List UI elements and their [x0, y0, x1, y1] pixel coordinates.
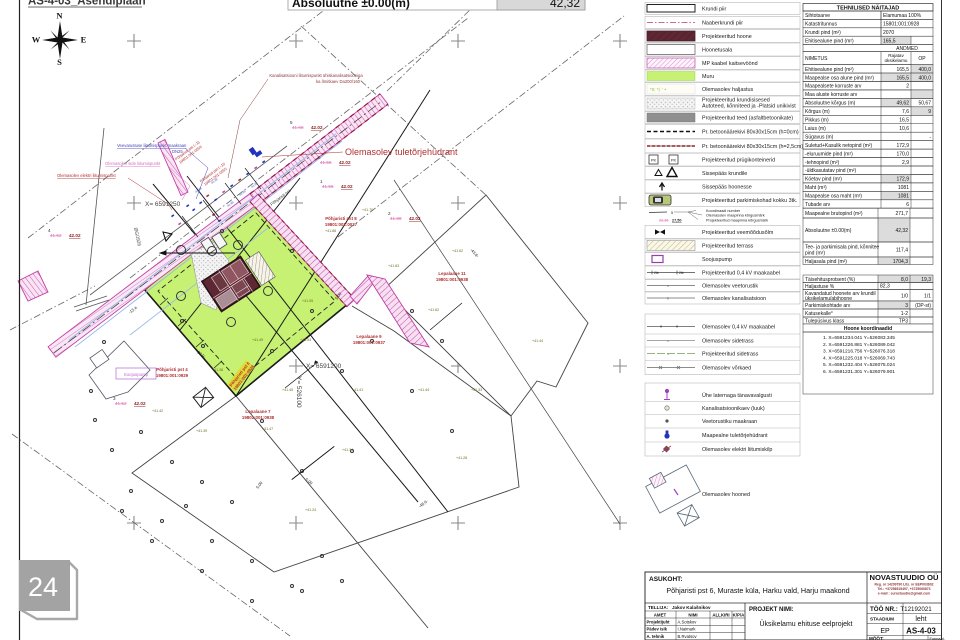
- svg-text:+41.63: +41.63: [388, 264, 399, 268]
- svg-text:AS-4-03: AS-4-03: [906, 627, 936, 636]
- svg-text:Katastritunnus: Katastritunnus: [805, 22, 837, 28]
- svg-text:W: W: [32, 35, 41, 45]
- svg-text:3. X=6591216.756 Y=526076.31: 3. X=6591216.756 Y=526076.318: [823, 349, 895, 355]
- svg-text:15801:001:0928: 15801:001:0928: [883, 22, 919, 28]
- svg-text:2tk: 2tk: [654, 271, 659, 275]
- svg-text:400,0: 400,0: [918, 67, 931, 73]
- svg-text:1/0: 1/0: [901, 293, 908, 299]
- svg-text:Maapealsete korruste arv: Maapealsete korruste arv: [805, 84, 862, 90]
- svg-text:MP kaabel kaitsevöönd: MP kaabel kaitsevöönd: [702, 61, 758, 67]
- svg-text:Projekteeritud parkimiskohad k: Projekteeritud parkimiskohad kokku 3tk.: [702, 198, 797, 204]
- svg-text:ka õmitkaev Da200/160: ka õmitkaev Da200/160: [316, 79, 361, 84]
- svg-text:Lepalaane 11: Lepalaane 11: [438, 271, 466, 276]
- svg-text:EP: EP: [880, 628, 890, 635]
- svg-text:2070: 2070: [883, 30, 894, 36]
- svg-text:Veevarustuse liitumispunkt maa: Veevarustuse liitumispunkt maakraan: [117, 143, 187, 148]
- svg-text:41.55: 41.55: [320, 160, 332, 165]
- svg-text:+41.44: +41.44: [532, 339, 543, 343]
- svg-text:+41.33: +41.33: [471, 388, 482, 392]
- svg-text:PK: PK: [671, 158, 677, 163]
- svg-text:Sihtotsarve: Sihtotsarve: [805, 13, 830, 19]
- svg-text:e-mail : eurostuudio@gmail.com: e-mail : eurostuudio@gmail.com: [878, 592, 930, 596]
- svg-text:Hoone koordinaadid: Hoone koordinaadid: [844, 326, 892, 332]
- svg-text:Projekteeritud 0,4 kV maakaabe: Projekteeritud 0,4 kV maakaabel: [702, 271, 780, 277]
- svg-text:165,5: 165,5: [896, 75, 909, 81]
- svg-text:AMET: AMET: [654, 613, 667, 618]
- svg-text:pind (m²): pind (m²): [805, 251, 825, 257]
- svg-text:*0; *|· ' •: *0; *|· ' •: [650, 87, 667, 92]
- svg-text:Kanalisatsioonikaev (luuk): Kanalisatsioonikaev (luuk): [702, 406, 765, 412]
- svg-text:41.68: 41.68: [292, 125, 304, 130]
- svg-text:Olemasolev 0,4 kV maakaabel: Olemasolev 0,4 kV maakaabel: [702, 325, 775, 331]
- svg-text:172,9: 172,9: [896, 177, 909, 183]
- svg-text:Olemasolev elektri liitumiskil: Olemasolev elektri liitumiskilp: [702, 447, 772, 453]
- svg-text:Maa aluste korruste arv: Maa aluste korruste arv: [805, 92, 858, 98]
- svg-text:ASUKOHT:: ASUKOHT:: [649, 576, 683, 583]
- svg-text:2tk: 2tk: [679, 271, 684, 275]
- svg-text:Tel.: +37256915497, +372506087: Tel.: +37256915497, +3725060873: [877, 587, 930, 591]
- svg-text:5: 5: [671, 211, 673, 215]
- svg-text:x: x: [667, 283, 669, 288]
- svg-text:165,5: 165,5: [883, 38, 896, 44]
- svg-text:s: s: [667, 338, 669, 343]
- svg-text:-eluruumide pind (m²): -eluruumide pind (m²): [805, 151, 853, 157]
- svg-text:Lepalaane 9: Lepalaane 9: [356, 334, 382, 339]
- svg-text:42,32: 42,32: [895, 228, 908, 234]
- svg-text:Olemasolev elektri liitumispun: Olemasolev elektri liitumispunkt: [57, 173, 116, 178]
- svg-text:Krundi piir: Krundi piir: [702, 7, 726, 13]
- svg-text:+41.70: +41.70: [362, 208, 373, 212]
- svg-text:Krundi pind (m²): Krundi pind (m²): [805, 30, 841, 36]
- svg-text:7,6: 7,6: [902, 109, 909, 115]
- svg-text:Projekteeritud maapinna kõrgus: Projekteeritud maapinna kõrgusmärk: [706, 218, 768, 222]
- svg-text:+41.38: +41.38: [212, 368, 223, 372]
- svg-text:16,5: 16,5: [899, 118, 909, 124]
- svg-text:Maapealse osa alune pind (m²): Maapealse osa alune pind (m²): [805, 75, 874, 81]
- svg-text:PK: PK: [651, 158, 657, 163]
- svg-text:+41.47: +41.47: [262, 427, 273, 431]
- svg-text:+41.41: +41.41: [352, 388, 363, 392]
- svg-text:+41.44: +41.44: [418, 388, 429, 392]
- svg-text:42.02: 42.02: [311, 125, 323, 130]
- svg-text:Põhjaristi pst 6, Muraste küla: Põhjaristi pst 6, Muraste küla, Harku va…: [666, 586, 849, 595]
- svg-text:AS-4-03_Asendiplaan: AS-4-03_Asendiplaan: [28, 0, 146, 8]
- svg-text:TÖÖ NR.:: TÖÖ NR.:: [870, 606, 898, 613]
- svg-text:Katusekalle°: Katusekalle°: [805, 311, 833, 317]
- svg-text:6. X=6591231.301 Y=526079.90: 6. X=6591231.301 Y=526079.901: [823, 369, 895, 375]
- svg-text:1081: 1081: [898, 194, 909, 200]
- svg-text:Olemasolev hooned: Olemasolev hooned: [702, 492, 750, 498]
- svg-text:Projekteeritud veemõõdusõlm: Projekteeritud veemõõdusõlm: [702, 230, 774, 236]
- svg-text:Olemasolev tuletõrjehüdrant: Olemasolev tuletõrjehüdrant: [345, 147, 458, 157]
- svg-text:Tubade arv: Tubade arv: [805, 202, 831, 208]
- svg-text:42.02: 42.02: [409, 216, 421, 221]
- svg-text:1081: 1081: [898, 185, 909, 191]
- svg-text:Tulepüsivus klass: Tulepüsivus klass: [805, 319, 845, 325]
- svg-text:ANDMED: ANDMED: [896, 46, 918, 52]
- svg-text:1-2: 1-2: [901, 311, 908, 317]
- svg-text:2. X=6591226.881 Y=526089.04: 2. X=6591226.881 Y=526089.042: [823, 342, 895, 348]
- svg-text:Projekteeritud terrass: Projekteeritud terrass: [702, 244, 754, 250]
- svg-text:Olemasolev sidetrass: Olemasolev sidetrass: [702, 339, 754, 345]
- svg-text:Laius (m): Laius (m): [805, 126, 826, 132]
- svg-text:Pädev isik: Pädev isik: [647, 627, 668, 632]
- svg-text:Projekteeritud sidetrass: Projekteeritud sidetrass: [702, 352, 759, 358]
- svg-text:N: N: [56, 11, 63, 21]
- svg-text:Veetorustiku maakraan: Veetorustiku maakraan: [702, 419, 757, 425]
- svg-text:42,32: 42,32: [550, 0, 580, 10]
- svg-text:Olemasolev haljastus: Olemasolev haljastus: [702, 87, 754, 93]
- svg-text:E: E: [81, 35, 87, 45]
- svg-text:+41.62: +41.62: [428, 308, 439, 312]
- svg-text:Naaberkrundi piir: Naaberkrundi piir: [702, 21, 743, 27]
- svg-text:TEHNILISED NÄITAJAD: TEHNILISED NÄITAJAD: [837, 5, 900, 12]
- svg-text:+41.34: +41.34: [342, 448, 353, 452]
- svg-text:OP: OP: [918, 56, 926, 62]
- svg-text:Täisehitusprotsent (%): Täisehitusprotsent (%): [805, 277, 855, 283]
- svg-text:Absoluutne kõrgus (m): Absoluutne kõrgus (m): [805, 101, 856, 107]
- svg-text:Muru: Muru: [702, 74, 714, 80]
- svg-text:+41.55: +41.55: [302, 299, 313, 303]
- svg-text:50,67: 50,67: [918, 101, 931, 107]
- svg-text:-üldkasutatav pind (m²): -üldkasutatav pind (m²): [805, 168, 856, 174]
- svg-text:41.52: 41.52: [50, 233, 62, 238]
- svg-text:Parkimiskohtade arv: Parkimiskohtade arv: [805, 303, 851, 309]
- svg-text:Olemasolev veetorustik: Olemasolev veetorustik: [702, 284, 758, 290]
- svg-text:k: k: [667, 296, 669, 301]
- svg-text:172,9: 172,9: [896, 143, 909, 149]
- svg-text:A. tehnik: A. tehnik: [647, 634, 665, 639]
- svg-text:A.Sotskov: A.Sotskov: [678, 619, 698, 624]
- svg-text:Olemasolev side liitumispunkt: Olemasolev side liitumispunkt: [105, 161, 161, 166]
- svg-text:+41.28: +41.28: [456, 456, 467, 460]
- svg-text:3: 3: [905, 303, 908, 309]
- svg-text:ALLKIRI: ALLKIRI: [712, 613, 729, 618]
- svg-text:Pr. betoonäärekivi 80x30x15cm: Pr. betoonäärekivi 80x30x15cm (h=2,5cm): [702, 144, 803, 150]
- svg-text:+41.49: +41.49: [252, 338, 263, 342]
- svg-text:TP3: TP3: [899, 319, 908, 325]
- svg-text:-tehnopind (m²): -tehnopind (m²): [805, 160, 840, 166]
- svg-text:PROJEKT NIMI:: PROJEKT NIMI:: [749, 607, 794, 613]
- svg-text:MÕÕT:: MÕÕT:: [869, 635, 884, 640]
- svg-text:B.Rvatsov: B.Rvatsov: [678, 634, 698, 639]
- svg-text:Haljastuse %: Haljastuse %: [805, 284, 835, 290]
- svg-text:Maapealse osa maht (m³): Maapealse osa maht (m³): [805, 194, 862, 200]
- svg-text:Projekteeritud prügikonteineri: Projekteeritud prügikonteinerid: [702, 158, 775, 164]
- svg-text:Ehitisealune pind (m²): Ehitisealune pind (m²): [805, 67, 854, 73]
- svg-text:Y= 526100: Y= 526100: [295, 376, 302, 408]
- svg-text:19801:001:0938: 19801:001:0938: [436, 277, 469, 282]
- svg-text:Ühe laternaga tänavavalgusti: Ühe laternaga tänavavalgusti: [702, 392, 772, 399]
- svg-text:Hoonetusala: Hoonetusala: [702, 48, 732, 54]
- svg-text:170,0: 170,0: [896, 151, 909, 157]
- svg-text:10,6: 10,6: [899, 126, 909, 132]
- svg-text:TELLIJA:: TELLIJA:: [648, 605, 669, 610]
- svg-text:Soojuspump: Soojuspump: [702, 257, 732, 263]
- svg-text:Autoteed, kõnniteed ja -Platsi: Autoteed, kõnniteed ja -Platsid unikivis…: [702, 104, 796, 110]
- svg-text:42.02: 42.02: [69, 233, 81, 238]
- svg-text:Põhjaristi pst 4: Põhjaristi pst 4: [156, 367, 188, 372]
- svg-text:Sissepääs hoonesse: Sissepääs hoonesse: [702, 185, 752, 191]
- svg-text:19801:001:0929: 19801:001:0929: [156, 373, 189, 378]
- svg-text:Maht (m³): Maht (m³): [805, 185, 827, 191]
- svg-text:42.02: 42.02: [134, 401, 146, 406]
- svg-text:5. X=6591232.404 Y=526075.02: 5. X=6591232.404 Y=526075.024: [823, 362, 895, 368]
- svg-text:+41.42: +41.42: [152, 409, 163, 413]
- svg-text:+41.62: +41.62: [452, 249, 463, 253]
- svg-text:Ehitisealune pind (m²): Ehitisealune pind (m²): [805, 38, 854, 44]
- svg-text:27,50: 27,50: [672, 219, 682, 223]
- svg-text:+41.45: +41.45: [282, 388, 293, 392]
- svg-text:271,7: 271,7: [895, 211, 908, 217]
- svg-text:Haljasala pind (m²): Haljasala pind (m²): [805, 259, 847, 265]
- svg-text:19,3: 19,3: [921, 277, 931, 283]
- svg-text:19801:001:0027: 19801:001:0027: [325, 222, 358, 227]
- svg-text:41.88: 41.88: [390, 216, 402, 221]
- svg-text:Põhjaristi pst 8: Põhjaristi pst 8: [325, 216, 357, 221]
- svg-text:82,3: 82,3: [880, 284, 890, 290]
- svg-text:+41.24: +41.24: [305, 508, 316, 512]
- svg-text:Lepalaane 7: Lepalaane 7: [245, 409, 271, 414]
- svg-text:Reg. nr 14209790 Lits. nr EEP0: Reg. nr 14209790 Lits. nr EEP003602: [875, 583, 934, 587]
- svg-text:leht: leht: [915, 616, 926, 623]
- svg-text:19801:001:0937: 19801:001:0937: [353, 340, 386, 345]
- svg-text:Koordinaadi number: Koordinaadi number: [706, 209, 741, 213]
- svg-text:S: S: [57, 57, 62, 67]
- svg-text:400,0: 400,0: [918, 75, 931, 81]
- svg-text:49,62: 49,62: [896, 101, 909, 107]
- svg-text:+41.88: +41.88: [325, 229, 336, 233]
- svg-text:1704,3: 1704,3: [893, 259, 909, 265]
- svg-text:41.55: 41.55: [322, 184, 334, 189]
- svg-text:Absoluutne ±0.00(m): Absoluutne ±0.00(m): [805, 228, 852, 234]
- svg-text:Projekteeritud teed (asfaltbet: Projekteeritud teed (asfaltbetoonikate): [702, 116, 793, 122]
- svg-text:22.35: 22.35: [659, 219, 669, 223]
- svg-text:2,9: 2,9: [902, 160, 909, 166]
- svg-text:6: 6: [906, 202, 909, 208]
- svg-text:Sügavus (m): Sügavus (m): [805, 134, 834, 140]
- svg-text:STAADIUM: STAADIUM: [870, 617, 894, 622]
- svg-text:K/P/A: K/P/A: [733, 613, 746, 618]
- svg-text:X= 6591250: X= 6591250: [145, 201, 181, 208]
- svg-text:Pikkus (m): Pikkus (m): [805, 118, 829, 124]
- svg-text:165,5: 165,5: [896, 67, 909, 73]
- svg-text:NIMI: NIMI: [688, 613, 697, 618]
- svg-text:41.52: 41.52: [115, 401, 127, 406]
- svg-text:4. X=6591225.018 Y=526069.74: 4. X=6591225.018 Y=526069.743: [823, 355, 895, 361]
- svg-text:NOVASTUUDIO OÜ: NOVASTUUDIO OÜ: [869, 573, 939, 582]
- svg-text:2: 2: [906, 84, 909, 90]
- svg-text:42.02: 42.02: [339, 160, 351, 165]
- svg-text:Soojuspump: Soojuspump: [124, 372, 149, 377]
- svg-text:19801:001:0938: 19801:001:0938: [242, 415, 275, 420]
- svg-text:Olemasolev maapinna kõrgusmärk: Olemasolev maapinna kõrgusmärk: [706, 214, 765, 218]
- svg-text:Kanalisatsiooni liitumispunkt: Kanalisatsiooni liitumispunkt ühiskanali…: [269, 73, 363, 78]
- svg-text:24: 24: [28, 572, 58, 602]
- svg-text:s: s: [667, 351, 669, 356]
- svg-text:T12192021: T12192021: [900, 606, 932, 613]
- svg-text:Suletud+Kasulik netopind (m²): Suletud+Kasulik netopind (m²): [805, 143, 872, 149]
- svg-text:Maapealne brutopind (m²): Maapealne brutopind (m²): [805, 211, 863, 217]
- svg-text:I.Naimark: I.Naimark: [678, 627, 697, 632]
- svg-text:Kõrgus (m): Kõrgus (m): [805, 109, 830, 115]
- svg-text:1/1: 1/1: [924, 293, 931, 299]
- svg-text:Olemasolev võrkaed: Olemasolev võrkaed: [702, 366, 751, 372]
- svg-text:Sissepääs krundile: Sissepääs krundile: [702, 171, 747, 177]
- svg-text:Olemasolev kanalisatsioon: Olemasolev kanalisatsioon: [702, 296, 766, 302]
- svg-text:117,4: 117,4: [896, 248, 908, 254]
- svg-text:Projektijuht: Projektijuht: [647, 619, 671, 624]
- svg-text:(DP-st): (DP-st): [915, 303, 931, 309]
- svg-text:Projekteeritud hoone: Projekteeritud hoone: [702, 34, 752, 40]
- svg-text:NIMETUS: NIMETUS: [805, 56, 828, 62]
- svg-text:+41.39: +41.39: [196, 429, 207, 433]
- svg-text:Üksikelamu ehituse eelprojekt: Üksikelamu ehituse eelprojekt: [760, 620, 853, 628]
- svg-text:42.02: 42.02: [341, 184, 353, 189]
- svg-text:Absoluutne ±0.00(m): Absoluutne ±0.00(m): [292, 0, 410, 10]
- svg-text:+41.53: +41.53: [300, 338, 311, 342]
- svg-text:X= 6591200: X= 6591200: [306, 363, 342, 370]
- svg-text:Elamumaa 100%: Elamumaa 100%: [883, 13, 922, 19]
- svg-text:Pr. betoonäärekivi 80x30x15cm: Pr. betoonäärekivi 80x30x15cm (h=0cm): [702, 130, 799, 136]
- svg-text:8,0: 8,0: [901, 277, 908, 283]
- svg-text:Köetav pind (m²): Köetav pind (m²): [805, 177, 842, 183]
- svg-text:Jakov Kalašnikov: Jakov Kalašnikov: [672, 605, 711, 610]
- svg-text:Maapealne tuletõrjehüdrant: Maapealne tuletõrjehüdrant: [702, 433, 768, 439]
- svg-text:üksikelamu: üksikelamu: [885, 58, 908, 63]
- svg-text:9: 9: [928, 109, 931, 115]
- svg-text:1. X=6591234.041 Y=526083.34: 1. X=6591234.041 Y=526083.345: [823, 335, 895, 341]
